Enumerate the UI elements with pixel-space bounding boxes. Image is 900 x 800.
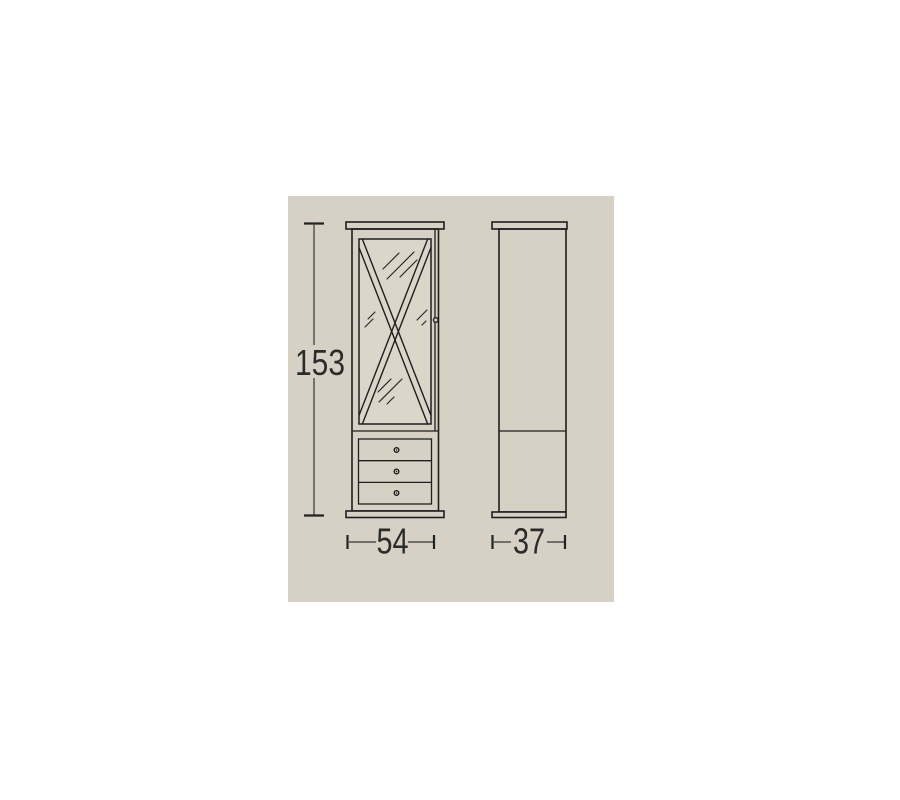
drawer-knobs bbox=[394, 448, 399, 496]
height-dimension-label: 153 bbox=[295, 342, 345, 383]
depth-dimension: 37 bbox=[493, 521, 566, 562]
page-background: 153 54 37 bbox=[0, 0, 900, 800]
depth-dimension-label: 37 bbox=[513, 521, 545, 562]
glass-door-panel bbox=[359, 239, 431, 424]
side-top-cornice bbox=[492, 222, 567, 229]
front-view bbox=[346, 222, 444, 518]
technical-drawing: 153 54 37 bbox=[288, 196, 614, 602]
drawer-knob-dot bbox=[396, 492, 397, 493]
width-dimension: 54 bbox=[348, 521, 435, 562]
drawer-knob-dot bbox=[396, 449, 397, 450]
drawing-canvas: 153 54 37 bbox=[288, 196, 614, 602]
door-knob bbox=[434, 318, 439, 323]
front-plinth-base bbox=[346, 511, 444, 518]
drawer-knob-dot bbox=[396, 471, 397, 472]
side-view bbox=[492, 222, 567, 518]
width-dimension-label: 54 bbox=[377, 521, 409, 562]
side-body bbox=[499, 229, 566, 512]
front-top-cornice bbox=[346, 222, 444, 229]
height-dimension: 153 bbox=[295, 224, 345, 516]
side-plinth-base bbox=[492, 512, 566, 518]
